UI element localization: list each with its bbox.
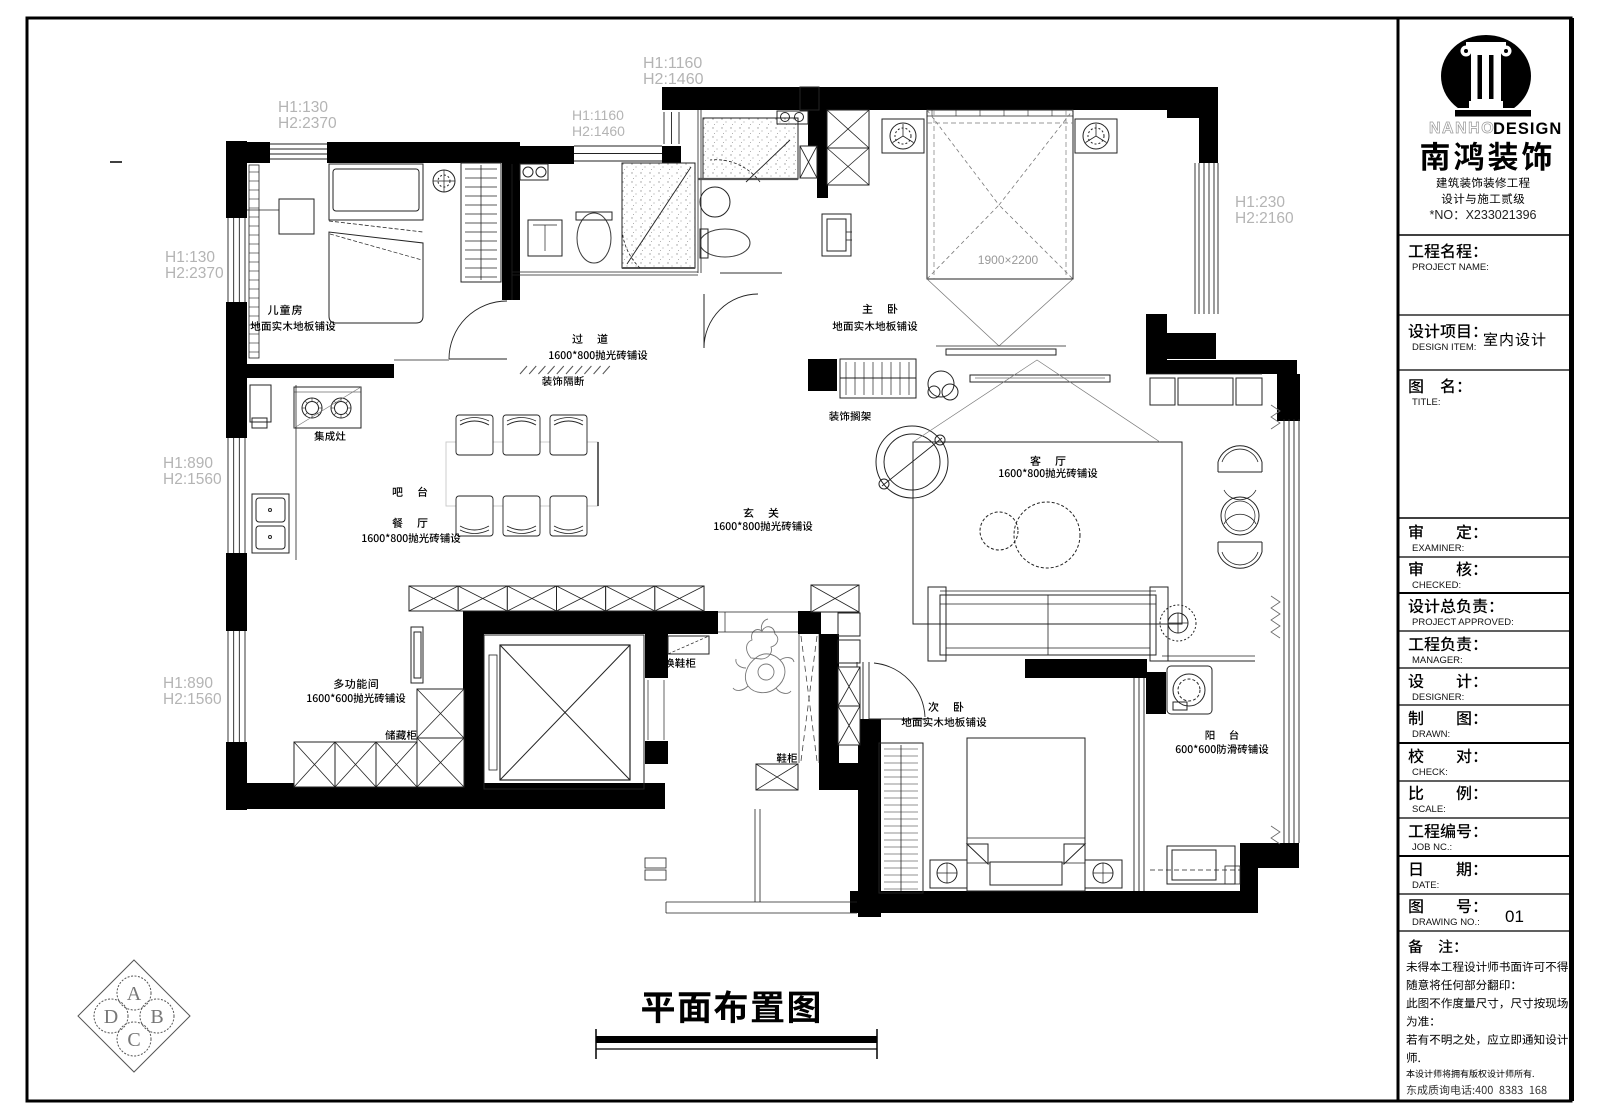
svg-text:C: C	[127, 1029, 140, 1051]
svg-text:JOB NC.:: JOB NC.:	[1412, 842, 1452, 853]
svg-text:1900×2200: 1900×2200	[978, 253, 1039, 267]
svg-text:*NO：X233021396: *NO：X233021396	[1429, 208, 1536, 222]
svg-text:DRAWN:: DRAWN:	[1412, 729, 1450, 740]
svg-text:EXAMINER:: EXAMINER:	[1412, 543, 1464, 554]
svg-text:D: D	[104, 1006, 118, 1028]
svg-text:DESIGN: DESIGN	[1493, 120, 1562, 138]
svg-text:H2:1560: H2:1560	[163, 691, 222, 708]
svg-text:DESIGNER:: DESIGNER:	[1412, 692, 1464, 703]
svg-text:H2:1460: H2:1460	[643, 71, 704, 88]
svg-text:SCALE:: SCALE:	[1412, 804, 1446, 815]
svg-text:B: B	[150, 1006, 163, 1028]
svg-text:H2:2370: H2:2370	[278, 115, 337, 132]
svg-text:PROJECT NAME:: PROJECT NAME:	[1412, 262, 1489, 273]
svg-text:PROJECT APPROVED:: PROJECT APPROVED:	[1412, 617, 1514, 628]
svg-text:H2:2160: H2:2160	[1235, 210, 1294, 227]
svg-text:A: A	[127, 983, 142, 1005]
svg-text:H1:1160: H1:1160	[572, 107, 624, 123]
svg-text:NANHO: NANHO	[1429, 120, 1495, 137]
svg-text:H2:1560: H2:1560	[163, 471, 222, 488]
svg-text:MANAGER:: MANAGER:	[1412, 655, 1463, 666]
svg-text:H2:2370: H2:2370	[165, 265, 224, 282]
svg-text:TITLE:: TITLE:	[1412, 397, 1441, 408]
svg-text:CHECKED:: CHECKED:	[1412, 580, 1461, 591]
svg-text:H1:130: H1:130	[165, 249, 215, 266]
svg-text:H1:230: H1:230	[1235, 194, 1285, 211]
svg-text:DESIGN ITEM:: DESIGN ITEM:	[1412, 342, 1476, 353]
svg-text:H1:130: H1:130	[278, 99, 328, 116]
svg-text:H2:1460: H2:1460	[572, 123, 625, 139]
svg-text:DRAWING NO.:: DRAWING NO.:	[1412, 917, 1480, 928]
svg-text:01: 01	[1505, 907, 1524, 926]
svg-text:H1:890: H1:890	[163, 455, 213, 472]
svg-text:CHECK:: CHECK:	[1412, 767, 1448, 778]
svg-text:DATE:: DATE:	[1412, 880, 1439, 891]
svg-text:H1:890: H1:890	[163, 675, 213, 692]
svg-text:H1:1160: H1:1160	[643, 55, 702, 72]
